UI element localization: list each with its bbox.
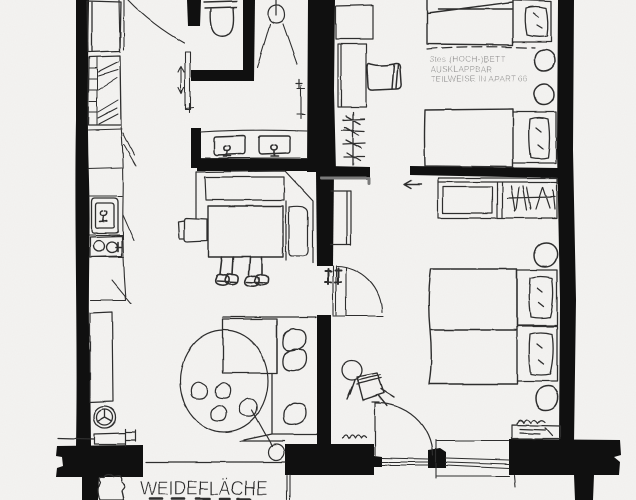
svg-text:AUSKLAPPBAR: AUSKLAPPBAR: [431, 65, 492, 74]
svg-text:3tes (HOCH-)BETT: 3tes (HOCH-)BETT: [430, 55, 506, 64]
svg-text:WEIDEFLÄCHE: WEIDEFLÄCHE: [140, 477, 268, 500]
svg-text:TEILWEISE IN APART 66: TEILWEISE IN APART 66: [431, 75, 528, 84]
